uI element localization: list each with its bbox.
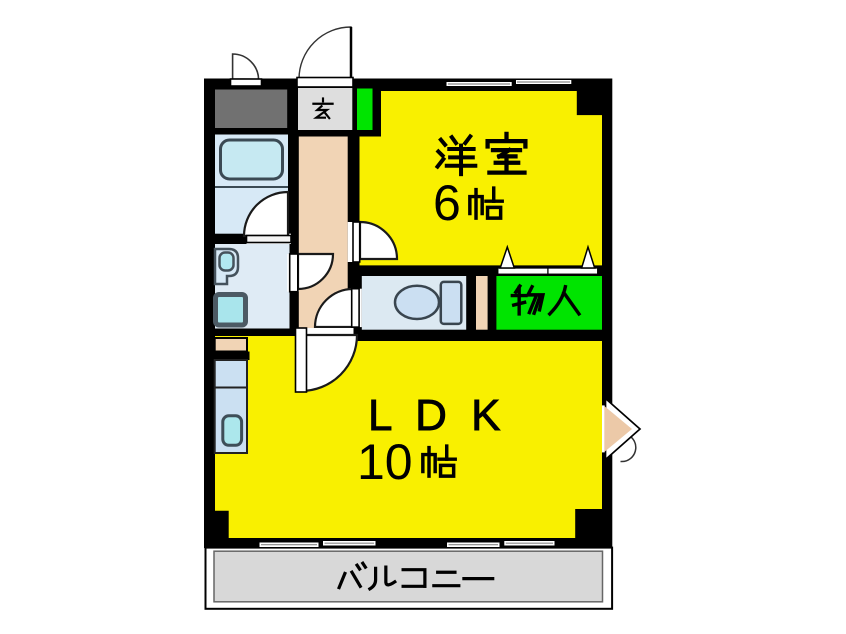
svg-text:L D K: L D K [368,391,506,440]
svg-text:6: 6 [433,175,461,231]
svg-text:10: 10 [357,434,413,490]
